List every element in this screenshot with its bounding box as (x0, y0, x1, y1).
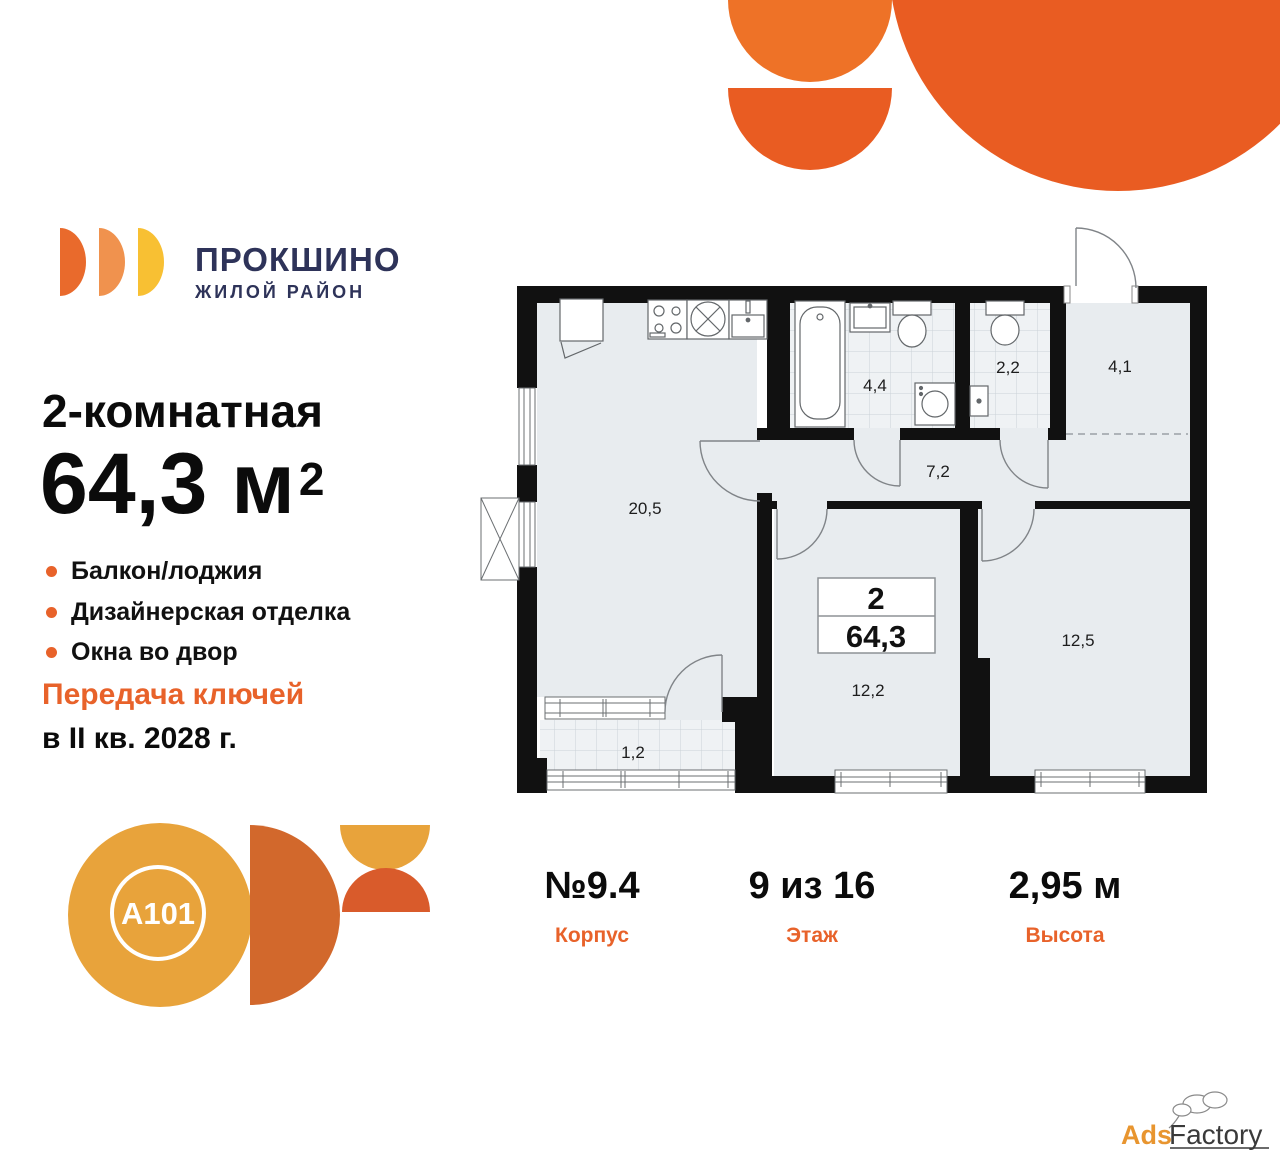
watermark-adsfactory: Ads Factory (1119, 1086, 1274, 1154)
label-hall: 4,1 (1108, 357, 1132, 376)
plan-info-box: 2 64,3 (818, 578, 935, 654)
developer-logo: A101 (60, 820, 440, 1012)
feature-text: Балкон/лоджия (71, 558, 262, 586)
header-decor-shapes (700, 0, 1280, 200)
decor-semicircle-bottom (728, 88, 892, 170)
area-value: 64,3 м (40, 436, 295, 532)
label-wc: 2,2 (996, 358, 1020, 377)
label-corridor: 7,2 (926, 462, 950, 481)
window-left-2 (519, 502, 535, 567)
wall-bottom-1 (735, 776, 835, 793)
bullet-icon (46, 607, 57, 618)
bullet-icon (46, 647, 57, 658)
a101-bowl (340, 825, 430, 870)
label-living: 20,5 (628, 499, 661, 518)
brand-logo-mark (57, 225, 177, 301)
bedroom1-door-opening (777, 501, 827, 509)
wall-bottom-2 (947, 776, 1035, 793)
wall-bath-wc (955, 286, 970, 428)
brand-tagline: ЖИЛОЙ РАЙОН (195, 282, 400, 303)
entrance-jamb-left (1064, 286, 1070, 303)
wall-bottom-corner (517, 758, 547, 793)
detail-floor: 9 из 16 Этаж (702, 866, 922, 948)
a101-dome (342, 868, 430, 912)
label-bedroom1: 12,2 (851, 681, 884, 700)
wc-toilet-bowl-icon (991, 315, 1019, 345)
decor-big-circle (889, 0, 1280, 191)
floor-label: Этаж (702, 924, 922, 948)
balcony-glazing (547, 770, 735, 790)
feature-item: Окна во двор (46, 639, 350, 667)
feature-text: Дизайнерская отделка (71, 599, 350, 627)
bedroom2-door-opening (982, 501, 1035, 509)
window-living-balcony (545, 697, 665, 719)
floor-value: 9 из 16 (702, 866, 922, 908)
logo-arc-3 (138, 228, 164, 296)
entrance-door-arc (1076, 228, 1136, 288)
wall-left-2 (517, 465, 537, 502)
wall-balcony-top (722, 697, 772, 722)
room-living-floor (537, 298, 757, 697)
wc-toilet-tank-icon (986, 301, 1024, 315)
info-box-area: 64,3 (846, 619, 906, 654)
toilet-tank-icon (893, 301, 931, 315)
apartment-type: 2-комнатная (42, 388, 323, 434)
entrance-opening (1066, 286, 1136, 303)
logo-arc-1 (60, 228, 86, 296)
wall-living-bath (767, 286, 790, 428)
brand-name: ПРОКШИНО (195, 243, 400, 276)
feature-list: Балкон/лоджия Дизайнерская отделка Окна … (46, 558, 350, 680)
height-label: Высота (955, 924, 1175, 948)
window-left-1 (519, 388, 535, 465)
floor-plan: 20,5 4,4 2,2 4,1 7,2 12,2 12,5 1,2 2 64,… (470, 225, 1215, 800)
building-value: №9.4 (482, 866, 702, 908)
detail-height: 2,95 м Высота (955, 866, 1175, 948)
fridge-icon (560, 299, 603, 341)
apartment-area: 64,3 м2 (40, 441, 325, 527)
feature-text: Окна во двор (71, 639, 238, 667)
bullet-icon (46, 566, 57, 577)
handover-title: Передача ключей (42, 680, 304, 710)
watermark-ads: Ads (1121, 1120, 1172, 1150)
wc-door-opening (1000, 428, 1048, 440)
listing-card: ПРОКШИНО ЖИЛОЙ РАЙОН 2-комнатная 64,3 м2… (0, 0, 1280, 1160)
logo-arc-2 (99, 228, 125, 296)
wall-right (1190, 286, 1207, 793)
a101-text: A101 (121, 896, 195, 931)
handover-date: в II кв. 2028 г. (42, 724, 237, 754)
decor-semicircle-top (728, 0, 892, 82)
balcony-doorway-floor (665, 697, 722, 720)
wall-balcony-right (735, 722, 757, 776)
feature-item: Дизайнерская отделка (46, 599, 350, 627)
room-corridor-floor (757, 440, 1190, 501)
toilet-bowl-icon (898, 315, 926, 347)
bath-door-opening (854, 428, 900, 440)
wall-left-1 (517, 286, 537, 388)
wall-bottom-3 (1145, 776, 1207, 793)
detail-building: №9.4 Корпус (482, 866, 702, 948)
building-label: Корпус (482, 924, 702, 948)
brand-logo: ПРОКШИНО ЖИЛОЙ РАЙОН (57, 225, 457, 305)
height-value: 2,95 м (955, 866, 1175, 908)
feature-item: Балкон/лоджия (46, 558, 350, 586)
label-bedroom2: 12,5 (1061, 631, 1094, 650)
area-superscript: 2 (299, 453, 325, 505)
watermark-factory: Factory (1169, 1119, 1262, 1150)
info-box-rooms: 2 (867, 581, 884, 616)
wall-bedroom1-bedroom2-upper (960, 501, 978, 658)
wall-wc-hall (1050, 286, 1066, 428)
wall-living-bedroom1 (757, 493, 772, 776)
a101-halfcircle (250, 825, 340, 1005)
label-bathroom: 4,4 (863, 376, 887, 395)
label-balcony: 1,2 (621, 743, 645, 762)
entrance-jamb-right (1132, 286, 1138, 303)
wall-bedroom1-bedroom2-lower (960, 658, 990, 776)
